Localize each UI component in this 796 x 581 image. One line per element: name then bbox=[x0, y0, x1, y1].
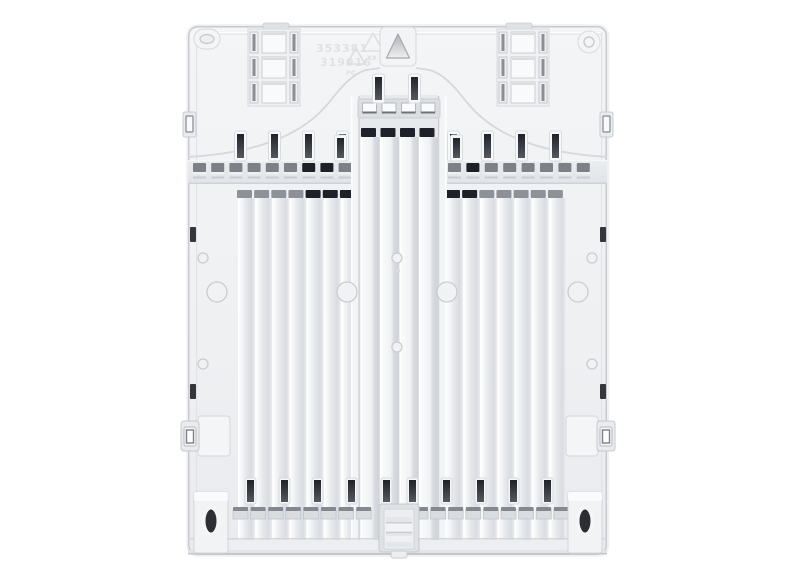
grid-slot-dark bbox=[253, 59, 256, 76]
vent-slot-dark bbox=[305, 134, 312, 158]
rib-cap bbox=[271, 190, 286, 198]
rib-cap bbox=[531, 190, 546, 198]
grid-slot-dark bbox=[293, 59, 296, 76]
rail-slot bbox=[577, 163, 590, 172]
center-rib-highlight bbox=[361, 137, 363, 548]
bottom-tab bbox=[286, 510, 301, 519]
screw-boss-circle bbox=[198, 253, 208, 263]
vent-slot-dark bbox=[247, 480, 254, 502]
rail-slot bbox=[211, 163, 224, 172]
vent-slot-dark bbox=[411, 77, 418, 100]
bottom-tab-edge bbox=[303, 507, 318, 511]
vent-slot-dark bbox=[375, 77, 382, 100]
bottom-tab bbox=[448, 510, 463, 519]
left-inner-edge bbox=[196, 32, 197, 540]
rail-slot-highlight bbox=[540, 173, 553, 175]
bottom-tab bbox=[251, 510, 266, 519]
vent-slot-shadow bbox=[402, 112, 416, 114]
rail-slot bbox=[302, 163, 315, 172]
bottom-center-latch bbox=[379, 504, 419, 558]
rail-slot-highlight bbox=[211, 173, 224, 175]
bottom-tab bbox=[431, 510, 446, 519]
grid-slot-dark bbox=[542, 59, 545, 76]
center-rib-column bbox=[351, 95, 447, 548]
panel: 353381 319916 XX PC bbox=[181, 23, 615, 558]
bottom-tab-edge bbox=[483, 507, 498, 511]
rail-slot-underline bbox=[558, 177, 571, 179]
rib-cap bbox=[514, 190, 529, 198]
rib-cap bbox=[306, 190, 321, 198]
bottom-tab-edge bbox=[339, 507, 354, 511]
rib-groove bbox=[324, 198, 341, 540]
bottom-tab-edge bbox=[448, 507, 463, 511]
bottom-tab-edge bbox=[233, 507, 248, 511]
rail-slot-highlight bbox=[302, 173, 315, 175]
rail-slot-underline bbox=[577, 177, 590, 179]
right-upper-hook-tab bbox=[600, 112, 613, 137]
vent-slot-dark bbox=[348, 480, 355, 502]
pilot-dot bbox=[396, 269, 400, 273]
grid-cell bbox=[511, 82, 535, 103]
rib bbox=[238, 198, 240, 540]
grid-cell-shadow bbox=[512, 58, 534, 60]
bottom-tab bbox=[303, 510, 318, 519]
grid-slot-dark bbox=[502, 34, 505, 51]
bottom-tab-edge bbox=[356, 507, 371, 511]
left-wall-slot bbox=[190, 384, 196, 399]
rail-slot-underline bbox=[211, 177, 224, 179]
bottom-tab-edge bbox=[554, 507, 569, 511]
screw-boss-circle bbox=[587, 359, 597, 369]
latch-roller-band bbox=[386, 536, 412, 542]
rib-groove bbox=[255, 198, 272, 540]
rail-slot-underline bbox=[540, 177, 553, 179]
clip-body bbox=[198, 416, 230, 456]
vent-slot-dark bbox=[477, 480, 484, 502]
latch-roller-line bbox=[386, 532, 412, 533]
rail-slot-underline bbox=[266, 177, 279, 179]
rail-slot bbox=[339, 163, 352, 172]
rib-cap bbox=[479, 190, 494, 198]
bottom-tab-edge bbox=[466, 507, 481, 511]
rail-slot-highlight bbox=[248, 173, 261, 175]
rail-slot-highlight bbox=[558, 173, 571, 175]
grid-cell bbox=[511, 57, 535, 78]
rail-slot-underline bbox=[302, 177, 315, 179]
bottom-tab-edge bbox=[501, 507, 516, 511]
center-rib-highlight bbox=[419, 137, 421, 548]
rib-cap bbox=[496, 190, 511, 198]
bottom-left-boss bbox=[194, 492, 228, 553]
right-inner-edge bbox=[601, 32, 602, 540]
rib bbox=[463, 198, 465, 540]
oval-mount-hole bbox=[578, 508, 593, 535]
vent-slot-dark bbox=[237, 134, 244, 158]
rail-slot-underline bbox=[448, 177, 461, 179]
bottom-tab bbox=[268, 510, 283, 519]
screw-boss-circle bbox=[568, 282, 588, 302]
top-left-oval-boss bbox=[194, 29, 220, 49]
bottom-tab bbox=[501, 510, 516, 519]
rail-slot-highlight bbox=[577, 173, 590, 175]
bottom-tab-edge bbox=[268, 507, 283, 511]
grid-slot-dark bbox=[502, 84, 505, 101]
rib-cap bbox=[548, 190, 563, 198]
bottom-tab bbox=[233, 510, 248, 519]
product-photo-canvas: 353381 319916 XX PC bbox=[0, 0, 796, 581]
rail-slot bbox=[503, 163, 516, 172]
center-rib-cap bbox=[420, 128, 435, 137]
rail-slot-underline bbox=[248, 177, 261, 179]
rib-cap bbox=[445, 190, 460, 198]
center-rib-cap bbox=[381, 128, 396, 137]
center-rib bbox=[361, 137, 381, 548]
rail-slot bbox=[522, 163, 535, 172]
rail-slot-highlight bbox=[193, 173, 206, 175]
bottom-tab bbox=[321, 510, 336, 519]
rib bbox=[497, 198, 499, 540]
grid-cell bbox=[511, 32, 535, 53]
rail-slot-underline bbox=[466, 177, 479, 179]
clip-body bbox=[566, 416, 598, 456]
rail-slot-underline bbox=[503, 177, 516, 179]
boss-top-face bbox=[194, 492, 228, 501]
rear-panel-illustration: 353381 319916 XX PC bbox=[0, 0, 796, 581]
column-left-rail-shadow bbox=[359, 96, 360, 548]
left-wall-slot bbox=[190, 227, 196, 242]
vent-slot-dark bbox=[314, 480, 321, 502]
screw-boss-circle bbox=[437, 282, 457, 302]
rib-cap bbox=[323, 190, 338, 198]
triangle-latch-tab bbox=[380, 27, 416, 66]
rail-slot-highlight bbox=[522, 173, 535, 175]
rib bbox=[307, 198, 309, 540]
rail-slot-highlight bbox=[466, 173, 479, 175]
vent-slot-dark bbox=[484, 134, 491, 158]
bottom-tab bbox=[466, 510, 481, 519]
screw-boss-circle bbox=[392, 342, 402, 352]
bottom-tab bbox=[483, 510, 498, 519]
rail-slot bbox=[485, 163, 498, 172]
rib-cap bbox=[237, 190, 252, 198]
bottom-tab bbox=[536, 510, 551, 519]
top-right-circle-boss bbox=[578, 31, 600, 53]
latch-roller-line bbox=[386, 522, 412, 523]
rail-slot bbox=[193, 163, 206, 172]
bottom-tab bbox=[339, 510, 354, 519]
grid-slot-dark bbox=[253, 34, 256, 51]
vent-slot-dark bbox=[383, 480, 390, 502]
bottom-tab-edge bbox=[519, 507, 534, 511]
left-side-clip bbox=[181, 416, 230, 456]
rail-slot-underline bbox=[522, 177, 535, 179]
bottom-tab bbox=[554, 510, 569, 519]
center-rib bbox=[419, 137, 439, 548]
grid-slot-dark bbox=[293, 84, 296, 101]
rail-slot-underline bbox=[485, 177, 498, 179]
rail-slot bbox=[284, 163, 297, 172]
bottom-tab-edge bbox=[321, 507, 336, 511]
screw-boss-circle bbox=[337, 282, 357, 302]
rail-slot bbox=[248, 163, 261, 172]
grid-cell bbox=[262, 82, 286, 103]
vent-slot-dark bbox=[281, 480, 288, 502]
vent-slot-dark bbox=[271, 134, 278, 158]
screw-boss-circle bbox=[207, 282, 227, 302]
screw-boss-circle bbox=[198, 359, 208, 369]
grid-cell-shadow bbox=[263, 33, 285, 35]
vent-slot-dark bbox=[337, 138, 344, 158]
rib bbox=[272, 198, 274, 540]
right-wall-slot bbox=[600, 227, 606, 242]
vent-slot-dark bbox=[409, 480, 416, 502]
hook-tab-slot bbox=[186, 116, 193, 132]
bottom-tab-edge bbox=[431, 507, 446, 511]
left-upper-hook-tab bbox=[183, 112, 196, 137]
oval-mount-hole bbox=[204, 508, 219, 535]
clip-hole bbox=[603, 430, 610, 443]
rail-slot-highlight bbox=[339, 173, 352, 175]
grid-cell-shadow bbox=[512, 33, 534, 35]
rail-slot-highlight bbox=[266, 173, 279, 175]
rail-slot-underline bbox=[339, 177, 352, 179]
bottom-tab bbox=[356, 510, 371, 519]
clip-hole bbox=[187, 430, 194, 443]
rib bbox=[341, 198, 343, 540]
vent-slot-shadow bbox=[421, 112, 435, 114]
rib-cap bbox=[462, 190, 477, 198]
rib bbox=[532, 198, 534, 540]
grid-slot-dark bbox=[253, 84, 256, 101]
vent-slot-dark bbox=[544, 480, 551, 502]
rail-bottom-line bbox=[188, 183, 352, 185]
center-rib-cap bbox=[361, 128, 376, 137]
rail-slot-underline bbox=[284, 177, 297, 179]
material-mark: XX bbox=[367, 54, 377, 62]
grid-cell-shadow bbox=[263, 83, 285, 85]
vent-slot-dark bbox=[518, 134, 525, 158]
rail-slot bbox=[229, 163, 242, 172]
grid-cell bbox=[262, 57, 286, 78]
rail-slot-highlight bbox=[448, 173, 461, 175]
rail-slot bbox=[558, 163, 571, 172]
rail-slot-highlight bbox=[485, 173, 498, 175]
vent-slot-dark bbox=[443, 480, 450, 502]
grid-slot-dark bbox=[542, 34, 545, 51]
rail-slot-highlight bbox=[284, 173, 297, 175]
rib bbox=[324, 198, 326, 540]
screw-boss-circle bbox=[587, 253, 597, 263]
vent-slot-shadow bbox=[363, 112, 377, 114]
grid-cell-shadow bbox=[512, 83, 534, 85]
vent-slot-dark bbox=[510, 480, 517, 502]
bottom-tab-edge bbox=[536, 507, 551, 511]
right-wall-slot bbox=[600, 384, 606, 399]
center-rib-cap bbox=[400, 128, 415, 137]
circle-boss-plate bbox=[578, 31, 600, 53]
rib-cap bbox=[254, 190, 269, 198]
vent-slot-dark bbox=[552, 134, 559, 158]
rail-slot bbox=[540, 163, 553, 172]
vent-slot-shadow bbox=[382, 112, 396, 114]
top-edge-tab-right bbox=[506, 23, 532, 29]
rail-slot-underline bbox=[229, 177, 242, 179]
grid-cell bbox=[262, 32, 286, 53]
oval-recess bbox=[200, 35, 214, 44]
boss-top-face bbox=[568, 492, 602, 501]
latch-bottom-tab bbox=[391, 551, 407, 558]
rail-slot-highlight bbox=[229, 173, 242, 175]
bottom-right-boss bbox=[568, 492, 602, 553]
part-number-line1: 353381 bbox=[316, 42, 368, 55]
rail-slot bbox=[266, 163, 279, 172]
rail-bottom-line bbox=[446, 183, 607, 185]
grid-cell-shadow bbox=[263, 58, 285, 60]
rail-slot-highlight bbox=[320, 173, 333, 175]
rib-cap bbox=[288, 190, 303, 198]
top-edge-tab-left bbox=[263, 23, 289, 29]
grid-slot-dark bbox=[293, 34, 296, 51]
bottom-tab-edge bbox=[251, 507, 266, 511]
bottom-tab bbox=[519, 510, 534, 519]
screw-boss-circle bbox=[392, 253, 402, 263]
rail-slot bbox=[448, 163, 461, 172]
rail-slot-underline bbox=[193, 177, 206, 179]
rail-slot-highlight bbox=[503, 173, 516, 175]
grid-slot-dark bbox=[502, 59, 505, 76]
vent-slot-dark bbox=[453, 138, 460, 158]
rail-slot bbox=[320, 163, 333, 172]
latch-roller-band bbox=[386, 524, 412, 531]
rail-slot bbox=[466, 163, 479, 172]
center-ribs bbox=[361, 128, 439, 548]
grid-slot-dark bbox=[542, 84, 545, 101]
right-side-clip bbox=[566, 416, 615, 456]
hook-tab-slot bbox=[603, 116, 610, 132]
rail-slot-underline bbox=[320, 177, 333, 179]
bottom-tab-edge bbox=[286, 507, 301, 511]
rib-groove bbox=[289, 198, 306, 540]
